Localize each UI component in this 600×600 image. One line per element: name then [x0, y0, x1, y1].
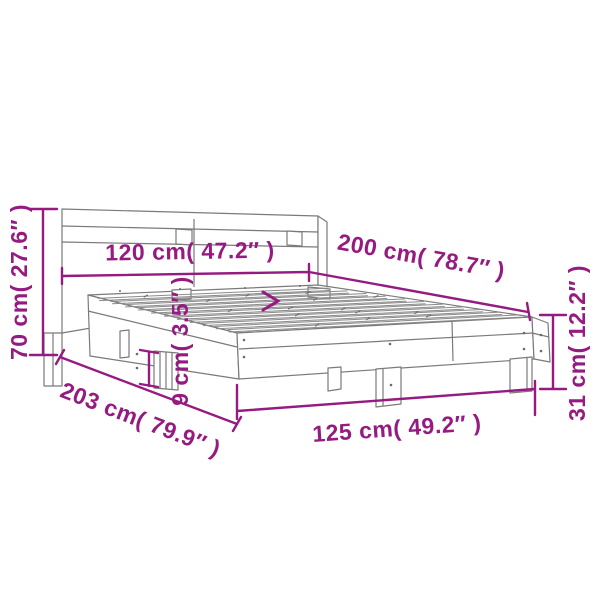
- mattress-length-label: 200 cm( 78.7″ ): [336, 229, 507, 284]
- side-height-label: 31 cm( 12.2″ ): [564, 265, 590, 421]
- diagram-canvas: 70 cm( 27.6″ ) 120 cm( 47.2″ ) 200 cm( 7…: [0, 0, 600, 600]
- mattress-width-label: 120 cm( 47.2″ ): [105, 237, 275, 266]
- headboard-height-label: 70 cm( 27.6″ ): [6, 204, 32, 360]
- total-width-label: 125 cm( 49.2″ ): [311, 409, 482, 447]
- platform-height-label: 9 cm( 3.5″ ): [167, 276, 193, 406]
- bed-frame-dimension-diagram: 70 cm( 27.6″ ) 120 cm( 47.2″ ) 200 cm( 7…: [0, 0, 600, 600]
- total-length-label: 203 cm( 79.9″ ): [57, 377, 224, 462]
